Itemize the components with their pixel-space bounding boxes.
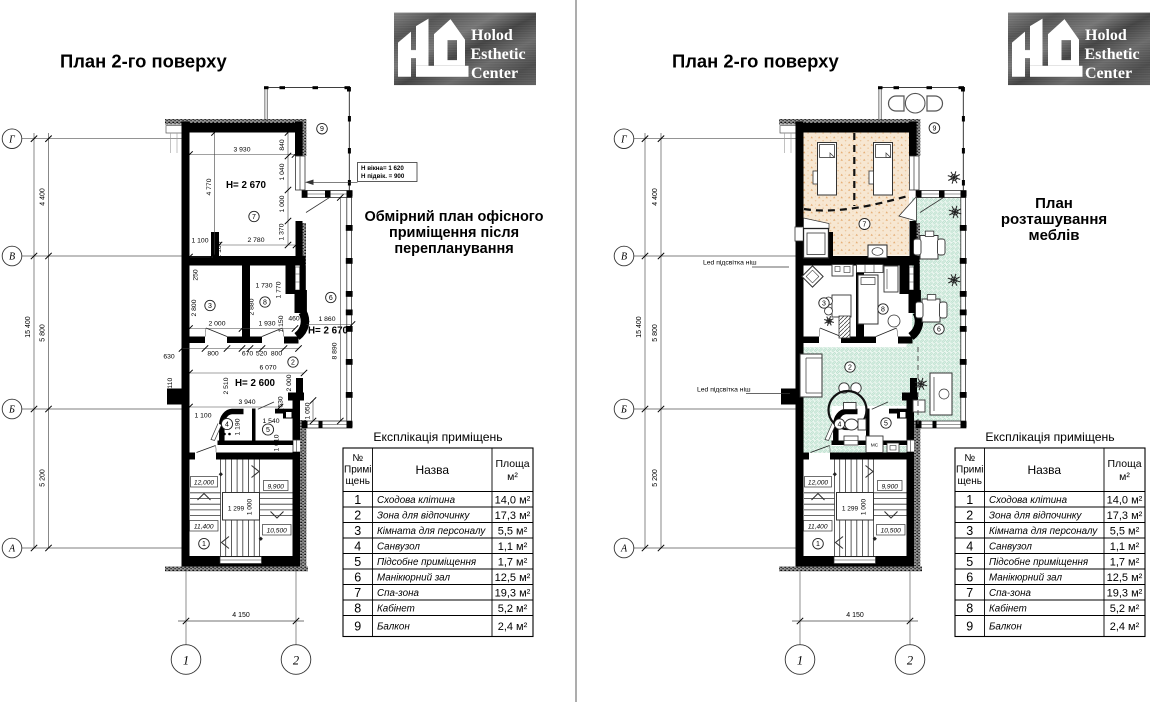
svg-text:меблів: меблів — [1028, 227, 1079, 244]
svg-text:8 890: 8 890 — [332, 342, 339, 359]
svg-text:План 2-го поверху: План 2-го поверху — [672, 51, 840, 72]
svg-text:1 370: 1 370 — [279, 223, 286, 240]
svg-text:3 940: 3 940 — [238, 399, 255, 406]
svg-text:Кімната для персоналу: Кімната для персоналу — [377, 526, 486, 537]
svg-text:Санвузол: Санвузол — [989, 541, 1032, 552]
svg-text:Зона для відпочинку: Зона для відпочинку — [377, 510, 471, 521]
svg-text:№: № — [352, 453, 363, 464]
svg-text:Балкон: Балкон — [989, 622, 1022, 633]
svg-text:Спа-зона: Спа-зона — [377, 588, 419, 599]
svg-text:4: 4 — [354, 539, 361, 553]
svg-text:1: 1 — [202, 541, 206, 548]
svg-text:1 100: 1 100 — [194, 413, 211, 420]
svg-text:12,000: 12,000 — [194, 480, 215, 487]
svg-text:460: 460 — [288, 316, 300, 323]
svg-text:Підсобне приміщення: Підсобне приміщення — [989, 557, 1089, 568]
svg-text:1: 1 — [183, 654, 189, 668]
svg-text:5,5 м²: 5,5 м² — [1110, 525, 1140, 537]
svg-text:Примі: Примі — [344, 465, 371, 476]
svg-text:17,3 м²: 17,3 м² — [1107, 510, 1143, 522]
svg-text:№: № — [964, 453, 975, 464]
svg-text:Кабінет: Кабінет — [377, 603, 415, 614]
svg-text:9: 9 — [354, 620, 361, 634]
svg-text:9,900: 9,900 — [267, 484, 284, 491]
svg-text:7: 7 — [252, 214, 256, 221]
svg-text:2 800: 2 800 — [191, 299, 198, 316]
svg-text:4: 4 — [225, 422, 229, 429]
svg-text:Н підвік. = 900: Н підвік. = 900 — [361, 173, 405, 180]
svg-text:Кімната для персоналу: Кімната для персоналу — [989, 526, 1098, 537]
svg-text:Esthetic: Esthetic — [1085, 46, 1140, 63]
svg-text:9,900: 9,900 — [881, 484, 898, 491]
svg-text:14,0 м²: 14,0 м² — [1107, 494, 1143, 506]
svg-text:10,500: 10,500 — [267, 528, 288, 535]
svg-text:Holod: Holod — [471, 27, 513, 44]
svg-text:9: 9 — [932, 126, 936, 133]
svg-text:11,400: 11,400 — [194, 524, 214, 531]
svg-text:м²: м² — [1119, 471, 1130, 483]
svg-text:Center: Center — [471, 65, 518, 82]
svg-text:6 070: 6 070 — [259, 365, 276, 372]
svg-text:1 610: 1 610 — [274, 434, 281, 451]
svg-text:1,7 м²: 1,7 м² — [498, 556, 528, 568]
svg-text:5: 5 — [266, 427, 270, 434]
svg-text:Примі: Примі — [956, 465, 983, 476]
svg-text:1 299: 1 299 — [842, 506, 859, 513]
svg-text:5 200: 5 200 — [652, 469, 659, 487]
svg-text:В: В — [9, 252, 15, 263]
svg-text:8: 8 — [966, 601, 973, 615]
svg-text:12,5 м²: 12,5 м² — [1107, 572, 1143, 584]
svg-text:6: 6 — [966, 570, 973, 584]
svg-text:Сходова клітина: Сходова клітина — [989, 495, 1068, 506]
svg-text:Назва: Назва — [1027, 463, 1061, 477]
svg-text:Led підсвітка ніш: Led підсвітка ніш — [703, 259, 757, 267]
svg-text:Н вікна= 1 620: Н вікна= 1 620 — [361, 165, 404, 172]
svg-text:1,1 м²: 1,1 м² — [498, 541, 528, 553]
svg-text:1,1 м²: 1,1 м² — [1110, 541, 1140, 553]
svg-text:1: 1 — [354, 493, 361, 507]
svg-text:8: 8 — [354, 601, 361, 615]
svg-text:12,000: 12,000 — [808, 480, 829, 487]
svg-text:9: 9 — [966, 620, 973, 634]
svg-text:Площа: Площа — [1107, 458, 1141, 470]
svg-text:1,7 м²: 1,7 м² — [1110, 556, 1140, 568]
svg-text:2,4 м²: 2,4 м² — [1110, 621, 1140, 633]
svg-text:Балкон: Балкон — [377, 622, 410, 633]
svg-text:8: 8 — [881, 307, 885, 314]
svg-text:5: 5 — [966, 555, 973, 569]
svg-text:1 040: 1 040 — [279, 163, 286, 180]
svg-text:630: 630 — [163, 354, 175, 361]
svg-text:Г: Г — [8, 134, 15, 145]
svg-text:Обмірний план офісного: Обмірний план офісного — [364, 209, 543, 225]
svg-text:Назва: Назва — [415, 463, 449, 477]
svg-text:2: 2 — [966, 508, 973, 522]
svg-text:5 800: 5 800 — [652, 324, 659, 342]
svg-text:2 780: 2 780 — [247, 237, 264, 244]
svg-text:17,3 м²: 17,3 м² — [495, 510, 531, 522]
svg-text:1 540: 1 540 — [262, 418, 279, 425]
svg-text:2: 2 — [293, 654, 299, 668]
svg-text:Зона для відпочинку: Зона для відпочинку — [989, 510, 1083, 521]
svg-text:2: 2 — [291, 360, 295, 367]
svg-text:Б: Б — [8, 405, 15, 416]
svg-text:2: 2 — [907, 654, 913, 668]
svg-text:4 110: 4 110 — [167, 378, 174, 395]
svg-text:5: 5 — [354, 555, 361, 569]
svg-text:19,3 м²: 19,3 м² — [495, 587, 531, 599]
svg-text:4 400: 4 400 — [652, 188, 659, 206]
svg-text:План 2-го поверху: План 2-го поверху — [60, 51, 228, 72]
svg-text:А: А — [620, 544, 628, 555]
svg-text:Г: Г — [620, 134, 627, 145]
svg-text:3: 3 — [208, 303, 212, 310]
svg-text:щень: щень — [346, 476, 370, 487]
svg-text:1 150: 1 150 — [278, 315, 285, 332]
svg-text:4 770: 4 770 — [206, 178, 213, 195]
svg-text:Holod: Holod — [1085, 27, 1127, 44]
svg-text:670: 670 — [242, 351, 254, 358]
svg-text:1 000: 1 000 — [279, 195, 286, 212]
svg-text:Санвузол: Санвузол — [377, 541, 420, 552]
svg-text:2 510: 2 510 — [223, 377, 230, 394]
svg-text:8: 8 — [263, 300, 267, 307]
svg-text:4 400: 4 400 — [40, 188, 47, 206]
svg-text:5 200: 5 200 — [40, 469, 47, 487]
svg-text:А: А — [8, 544, 16, 555]
svg-text:1 000: 1 000 — [247, 498, 254, 515]
svg-text:Esthetic: Esthetic — [471, 46, 526, 63]
svg-text:1: 1 — [797, 654, 803, 668]
svg-text:1 050: 1 050 — [305, 402, 312, 419]
svg-text:7: 7 — [354, 586, 361, 600]
svg-text:1 770: 1 770 — [276, 281, 283, 298]
svg-text:7: 7 — [863, 222, 867, 229]
svg-text:Манікюрний зал: Манікюрний зал — [377, 572, 451, 583]
svg-text:800: 800 — [207, 351, 219, 358]
svg-text:5,5 м²: 5,5 м² — [498, 525, 528, 537]
svg-text:2 000: 2 000 — [286, 374, 293, 391]
svg-text:5,2 м²: 5,2 м² — [1110, 603, 1140, 615]
svg-text:1 100: 1 100 — [191, 238, 208, 245]
svg-text:840: 840 — [279, 139, 286, 151]
svg-text:6: 6 — [354, 570, 361, 584]
svg-text:7: 7 — [966, 586, 973, 600]
svg-text:Сходова клітина: Сходова клітина — [377, 495, 456, 506]
svg-text:Підсобне приміщення: Підсобне приміщення — [377, 557, 477, 568]
svg-text:1 730: 1 730 — [255, 283, 272, 290]
svg-text:розташування: розташування — [1001, 211, 1107, 228]
svg-text:530: 530 — [278, 396, 285, 408]
svg-text:В: В — [621, 252, 627, 263]
svg-text:19,3 м²: 19,3 м² — [1107, 587, 1143, 599]
svg-text:Площа: Площа — [495, 458, 529, 470]
svg-text:4: 4 — [966, 539, 973, 553]
svg-text:12,5 м²: 12,5 м² — [495, 572, 531, 584]
svg-text:6: 6 — [329, 295, 333, 302]
svg-text:2: 2 — [354, 508, 361, 522]
svg-text:Експлікація приміщень: Експлікація приміщень — [373, 430, 502, 444]
svg-text:2 000: 2 000 — [208, 321, 225, 328]
svg-text:15 400: 15 400 — [25, 316, 32, 338]
svg-text:1 860: 1 860 — [318, 316, 335, 323]
svg-text:15 400: 15 400 — [636, 316, 643, 338]
svg-text:5: 5 — [884, 421, 888, 428]
svg-text:1 190: 1 190 — [235, 418, 242, 435]
svg-text:1 930: 1 930 — [258, 321, 275, 328]
svg-text:3 930: 3 930 — [233, 147, 250, 154]
svg-text:3: 3 — [354, 524, 361, 538]
svg-text:Led підсвітка ніш: Led підсвітка ніш — [697, 386, 751, 394]
svg-text:1 299: 1 299 — [228, 506, 245, 513]
svg-text:H= 2 670: H= 2 670 — [308, 326, 349, 337]
svg-text:Б: Б — [620, 405, 627, 416]
svg-text:Експлікація приміщень: Експлікація приміщень — [985, 430, 1114, 444]
svg-text:3: 3 — [822, 301, 826, 308]
svg-text:План: План — [1035, 195, 1073, 212]
svg-text:2,4 м²: 2,4 м² — [498, 621, 528, 633]
svg-text:Center: Center — [1085, 65, 1132, 82]
svg-text:9: 9 — [320, 126, 324, 133]
svg-text:3: 3 — [966, 524, 973, 538]
svg-text:2 880: 2 880 — [249, 298, 256, 315]
svg-text:14,0 м²: 14,0 м² — [495, 494, 531, 506]
svg-text:м²: м² — [507, 471, 518, 483]
svg-text:Кабінет: Кабінет — [989, 603, 1027, 614]
svg-text:приміщення після: приміщення після — [389, 225, 519, 241]
svg-text:6: 6 — [937, 327, 941, 334]
svg-text:1 000: 1 000 — [861, 498, 868, 515]
svg-text:2: 2 — [848, 365, 852, 372]
svg-text:перепланування: перепланування — [394, 241, 513, 257]
svg-text:H= 2 600: H= 2 600 — [235, 378, 276, 389]
svg-text:4: 4 — [838, 422, 842, 429]
svg-text:щень: щень — [958, 476, 982, 487]
svg-text:4 150: 4 150 — [846, 612, 864, 619]
svg-text:1: 1 — [966, 493, 973, 507]
svg-text:5,2 м²: 5,2 м² — [498, 603, 528, 615]
svg-text:Манікюрний зал: Манікюрний зал — [989, 572, 1063, 583]
svg-text:1 100: 1 100 — [216, 241, 223, 258]
svg-text:11,400: 11,400 — [808, 524, 828, 531]
svg-text:Спа-зона: Спа-зона — [989, 588, 1031, 599]
svg-text:10,500: 10,500 — [881, 528, 902, 535]
svg-text:1: 1 — [816, 541, 820, 548]
svg-text:4 150: 4 150 — [232, 612, 250, 619]
svg-text:H= 2 670: H= 2 670 — [226, 180, 267, 191]
svg-text:520: 520 — [256, 351, 268, 358]
svg-text:5 800: 5 800 — [40, 324, 47, 342]
svg-text:800: 800 — [271, 351, 283, 358]
svg-text:250: 250 — [193, 269, 200, 281]
svg-text:МС: МС — [871, 443, 879, 449]
